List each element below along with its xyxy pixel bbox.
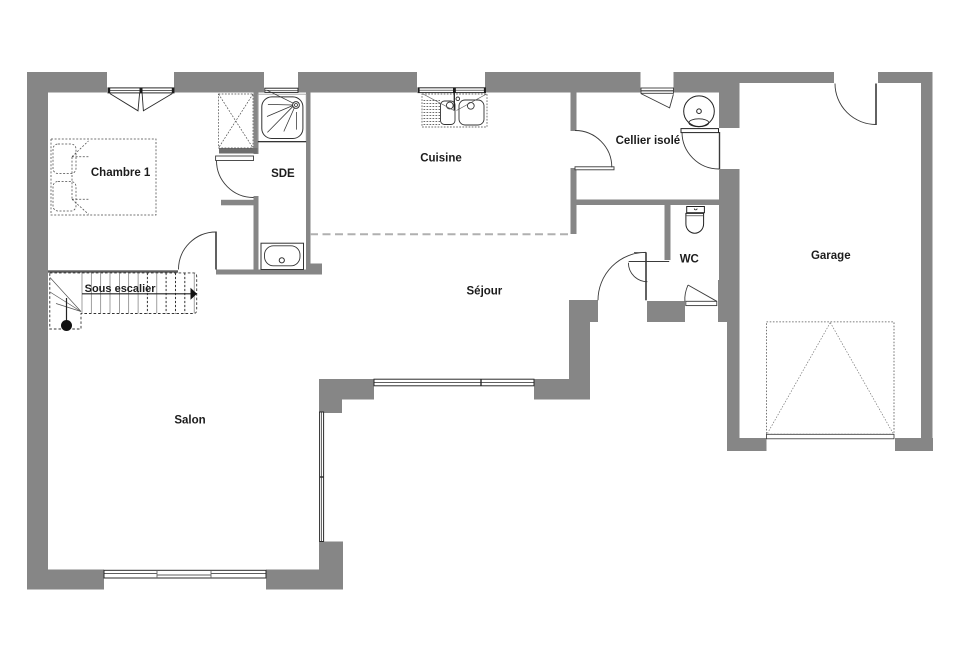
svg-text:Garage: Garage — [811, 250, 851, 262]
svg-text:SDE: SDE — [271, 168, 295, 180]
svg-text:Cellier isolé: Cellier isolé — [616, 135, 681, 147]
svg-text:Salon: Salon — [174, 415, 205, 427]
svg-text:Chambre 1: Chambre 1 — [91, 167, 151, 179]
svg-text:WC: WC — [680, 254, 699, 266]
svg-text:Séjour: Séjour — [467, 285, 503, 297]
svg-text:Sous escalier: Sous escalier — [85, 283, 157, 295]
svg-text:Cuisine: Cuisine — [420, 153, 462, 165]
